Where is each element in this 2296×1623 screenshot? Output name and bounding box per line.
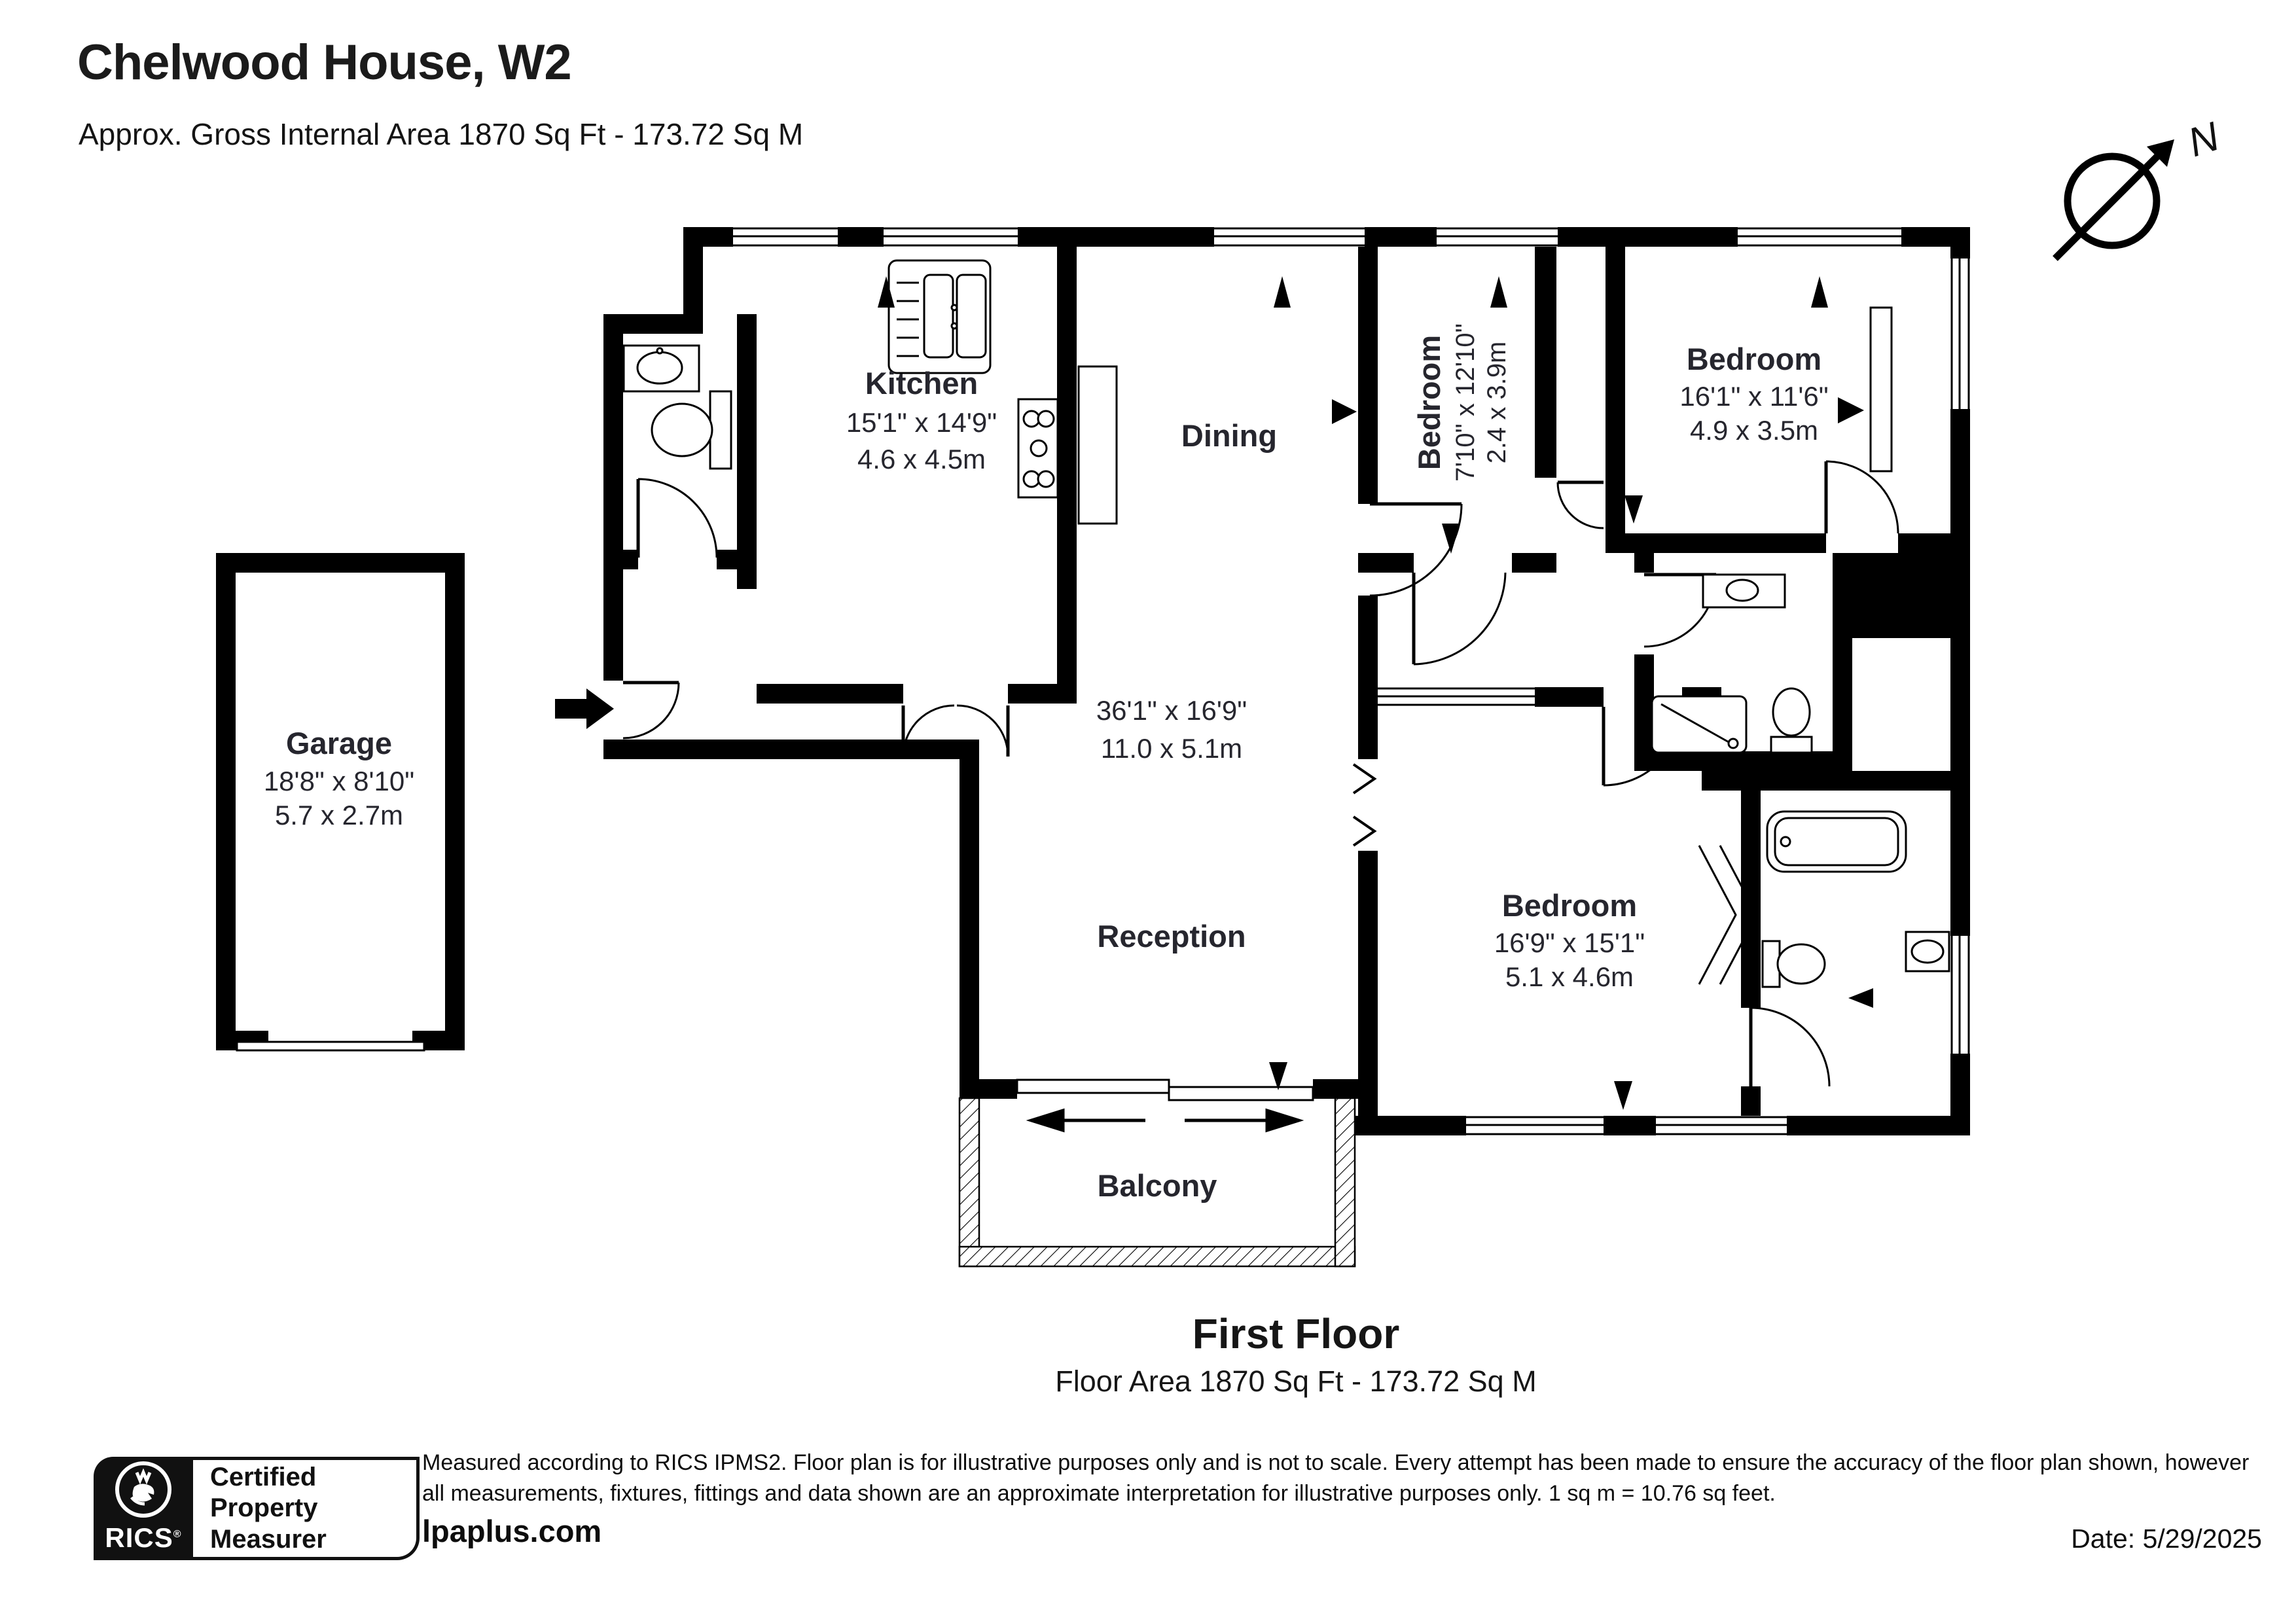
bedroom-bottom-label: Bedroom: [1502, 888, 1637, 923]
floor-plan: N Kitchen 15'1" x 14'9" 4.6 x 4.5m Dinin…: [0, 0, 2296, 1623]
hob-icon: [1018, 399, 1058, 497]
reception-label: Reception: [1097, 919, 1246, 954]
bathroom-sink-icon: [1703, 575, 1785, 607]
garage-door-line: [237, 1042, 424, 1050]
shower-tray-icon: [1652, 696, 1746, 753]
bedroom-small-dims-imperial: 7'10" x 12'10": [1451, 323, 1480, 482]
bedroom-topright-label: Bedroom: [1687, 342, 1821, 376]
bedroom-topright-dims-metric: 4.9 x 3.5m: [1690, 415, 1818, 446]
slider-direction-arrows: [1031, 1111, 1299, 1130]
wc-sink-icon: [624, 346, 699, 391]
bedroom-small-label: Bedroom: [1412, 335, 1446, 470]
rics-certification-badge: RICS® Certified Property Measurer: [94, 1457, 420, 1560]
dining-label: Dining: [1181, 418, 1277, 453]
wardrobe-outline: [1871, 308, 1892, 471]
openplan-dims-imperial: 36'1" x 16'9": [1096, 695, 1247, 726]
garage-dims-imperial: 18'8" x 8'10": [264, 766, 414, 796]
floor-title: First Floor: [1193, 1310, 1399, 1357]
bedroom-bottom-dims-imperial: 16'9" x 15'1": [1494, 927, 1645, 958]
kitchen-label: Kitchen: [865, 366, 978, 401]
bedroom-topright-dims-imperial: 16'1" x 11'6": [1679, 381, 1828, 412]
balcony-label: Balcony: [1098, 1168, 1217, 1203]
date-label: Date: 5/29/2025: [2071, 1524, 2262, 1554]
rics-wordmark: RICS®: [105, 1522, 181, 1560]
bedroom-small-dims-metric: 2.4 x 3.9m: [1482, 342, 1511, 464]
kitchen-dims-imperial: 15'1" x 14'9": [846, 407, 997, 438]
balcony-slider: [1017, 1080, 1313, 1100]
bedroom-bottom-dims-metric: 5.1 x 4.6m: [1505, 961, 1634, 992]
bedroom-small-label-group: Bedroom 7'10" x 12'10" 2.4 x 3.9m: [1412, 323, 1511, 482]
wall-break-symbol: [1354, 759, 1382, 851]
rics-lion-icon: [112, 1458, 175, 1521]
compass-north-label: N: [2183, 114, 2225, 166]
kitchen-sink-icon: [889, 260, 990, 373]
kitchen-counter: [1079, 366, 1117, 524]
ensuite-toilet-icon: [1763, 941, 1825, 987]
wc-toilet-icon: [652, 391, 731, 469]
ensuite-sink-icon: [1906, 932, 1949, 971]
bathtub-icon: [1767, 811, 1906, 872]
garage-dims-metric: 5.7 x 2.7m: [275, 800, 403, 830]
entry-arrow-icon: [555, 688, 614, 729]
badge-line-1: Certified: [210, 1462, 416, 1493]
bathroom-toilet-icon: [1771, 688, 1812, 753]
website-link[interactable]: lpaplus.com: [422, 1513, 601, 1549]
disclaimer-text: Measured according to RICS IPMS2. Floor …: [422, 1448, 2268, 1509]
badge-line-2: Property: [210, 1493, 416, 1524]
garage-label: Garage: [286, 726, 392, 760]
registered-mark: ®: [173, 1529, 182, 1540]
openplan-dims-metric: 11.0 x 5.1m: [1101, 733, 1242, 764]
compass-north-icon: N: [2055, 114, 2225, 259]
badge-text: Certified Property Measurer: [193, 1457, 420, 1560]
fixtures: [237, 260, 1949, 1050]
rics-logo: RICS®: [94, 1457, 193, 1560]
floor-subtitle: Floor Area 1870 Sq Ft - 173.72 Sq M: [1055, 1364, 1536, 1398]
badge-line-3: Measurer: [210, 1524, 416, 1555]
kitchen-dims-metric: 4.6 x 4.5m: [857, 444, 986, 474]
